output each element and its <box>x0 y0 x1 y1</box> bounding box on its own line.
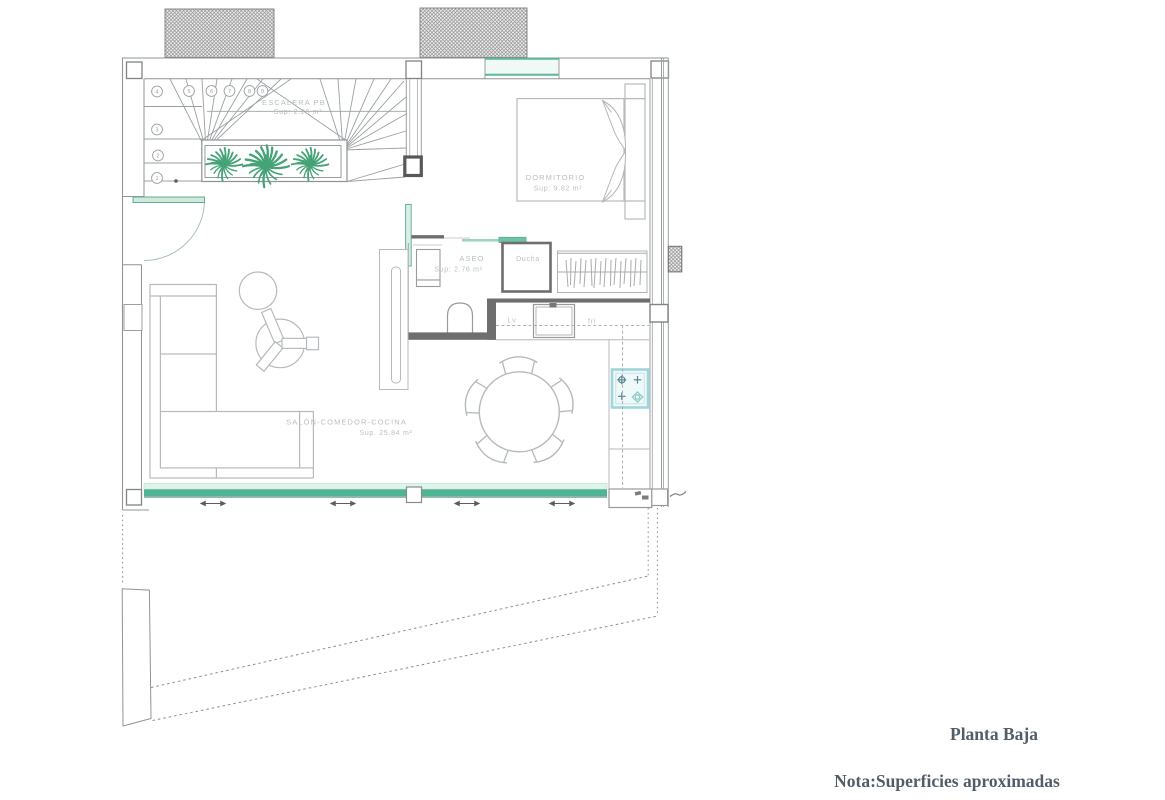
svg-text:8: 8 <box>248 89 251 95</box>
svg-text:ESCALERA PB: ESCALERA PB <box>262 98 326 107</box>
svg-text:Sup: 9.82 m²: Sup: 9.82 m² <box>534 186 582 193</box>
svg-text:Lv: Lv <box>508 318 517 325</box>
svg-text:Sup: 2.29 m²: Sup: 2.29 m² <box>274 109 322 116</box>
svg-text:Nota:Superficies aproximadas: Nota:Superficies aproximadas <box>834 771 1060 791</box>
svg-text:3: 3 <box>155 128 158 134</box>
svg-text:Sup. 25.84 m²: Sup. 25.84 m² <box>359 430 412 437</box>
svg-text:9: 9 <box>261 89 264 95</box>
svg-text:Planta Baja: Planta Baja <box>950 724 1038 744</box>
svg-text:2: 2 <box>156 154 159 160</box>
svg-text:7: 7 <box>228 89 231 95</box>
svg-text:DORMITORIO: DORMITORIO <box>526 173 586 182</box>
svg-text:4: 4 <box>155 90 158 96</box>
svg-text:Sup: 2.76 m²: Sup: 2.76 m² <box>434 267 482 274</box>
svg-text:fri: fri <box>588 319 596 326</box>
svg-text:5: 5 <box>187 89 190 95</box>
svg-text:6: 6 <box>210 89 213 95</box>
svg-text:ASEO: ASEO <box>459 254 484 263</box>
svg-text:1: 1 <box>155 176 158 182</box>
svg-text:Ducha: Ducha <box>516 256 540 263</box>
svg-text:SALÓN-COMEDOR-COCINA: SALÓN-COMEDOR-COCINA <box>286 418 407 427</box>
